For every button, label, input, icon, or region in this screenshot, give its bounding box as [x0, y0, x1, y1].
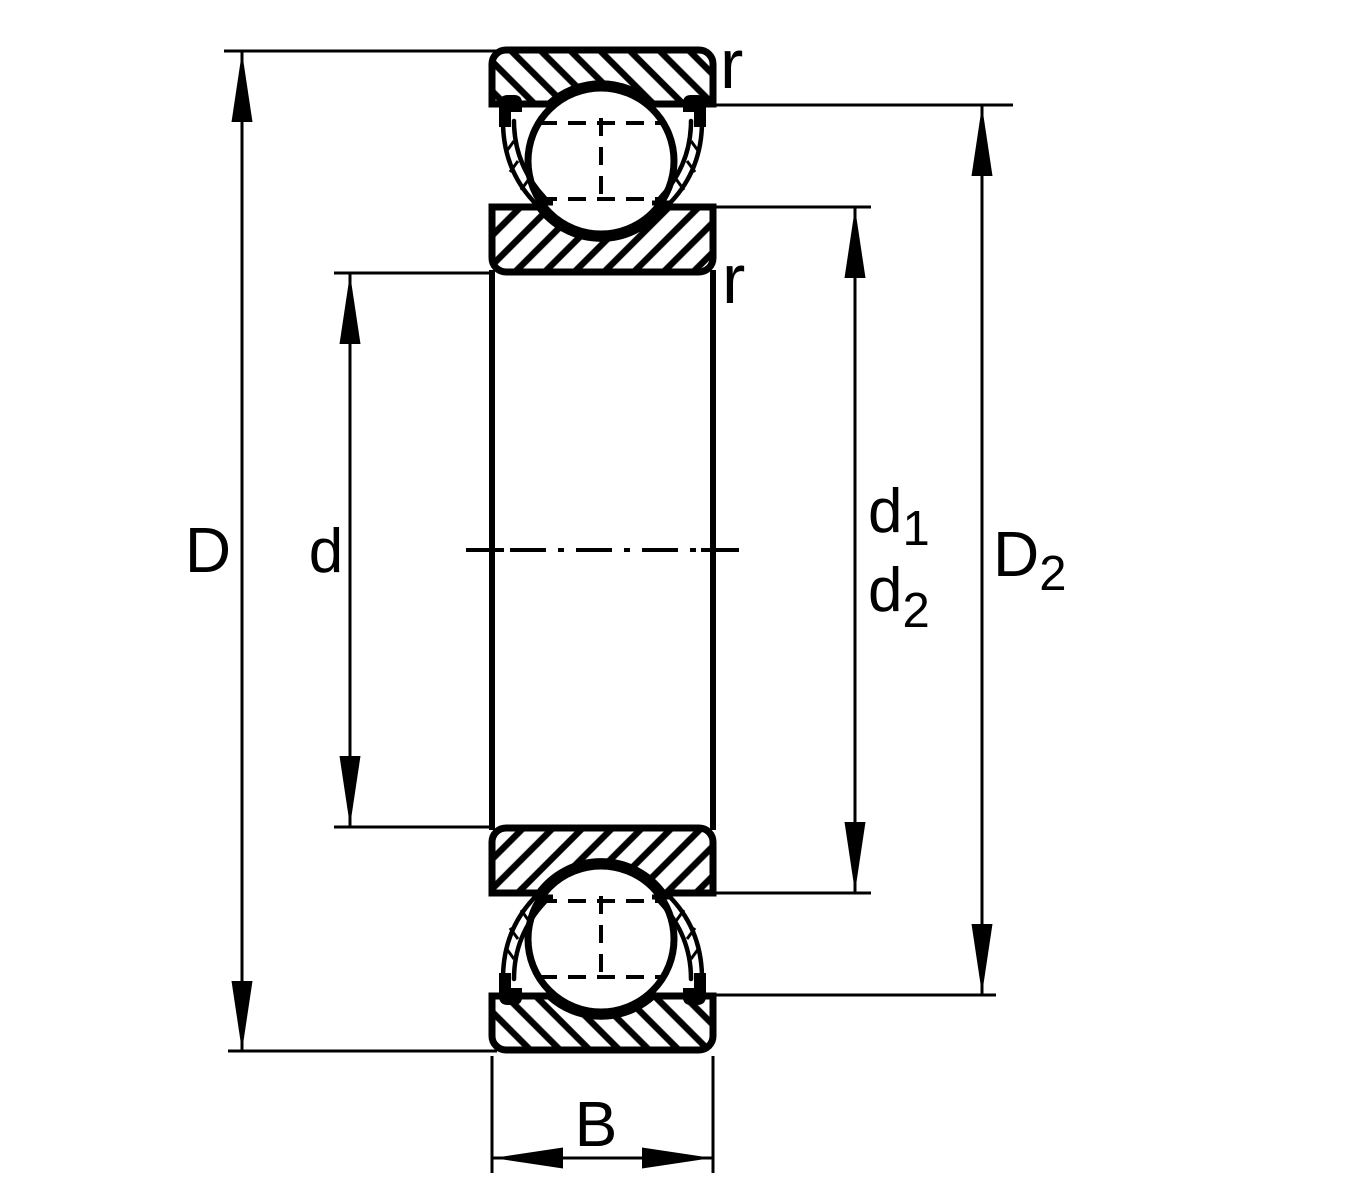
label-d2-sub: 2 — [902, 584, 929, 638]
label-d2-base: d — [868, 556, 902, 625]
label-d1-sub: 1 — [902, 502, 929, 556]
label-r-outer: r — [720, 25, 743, 103]
label-d: d — [309, 517, 343, 586]
label-B: B — [575, 1088, 618, 1160]
label-D: D — [185, 514, 231, 586]
bearing-dimension-diagram: D d d1 d2 D2 B r r — [0, 0, 1350, 1200]
label-D2-sub: 2 — [1039, 547, 1066, 601]
label-r-inner: r — [722, 240, 745, 318]
label-d1-base: d — [868, 477, 902, 546]
label-D2-base: D — [993, 518, 1039, 590]
